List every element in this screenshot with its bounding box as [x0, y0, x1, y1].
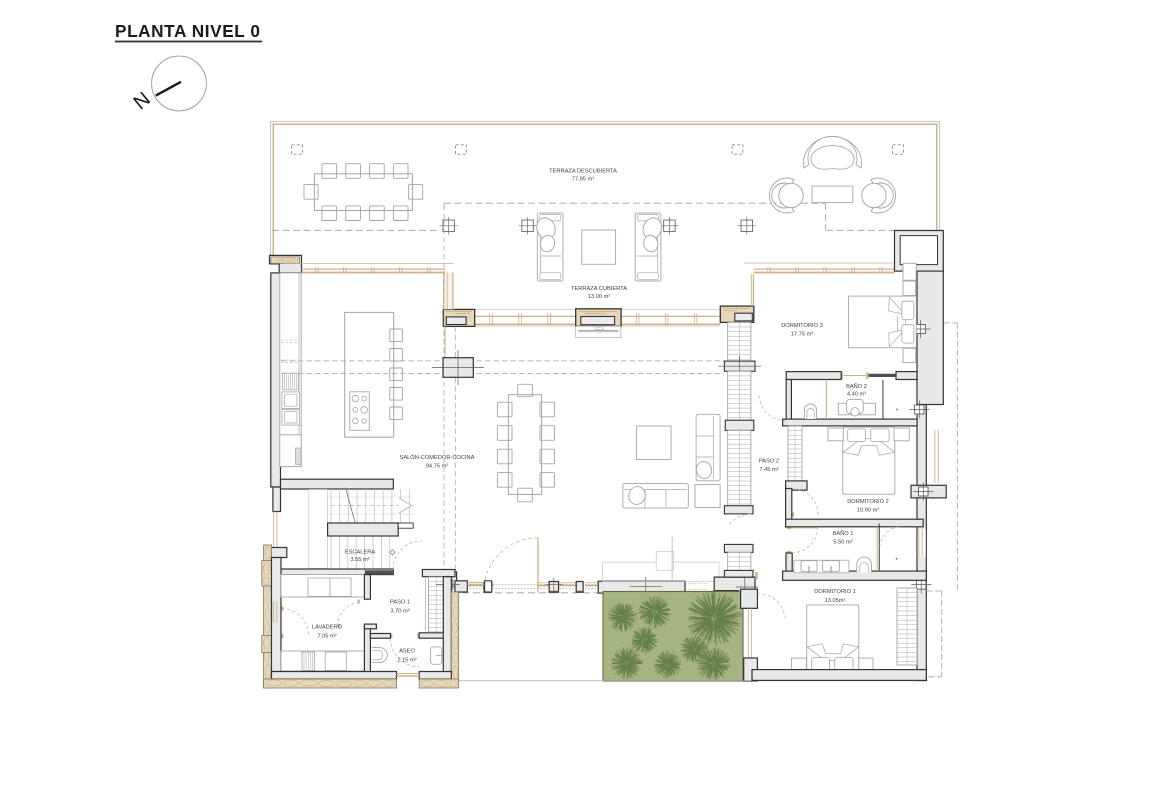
svg-text:PASO 1: PASO 1: [390, 600, 410, 606]
svg-text:7.45 m²: 7.45 m²: [759, 467, 778, 473]
svg-text:77.95 m²: 77.95 m²: [572, 177, 595, 183]
svg-text:ESCALERA: ESCALERA: [345, 550, 376, 556]
svg-text:7.05 m²: 7.05 m²: [317, 634, 336, 640]
svg-text:10.90 m²: 10.90 m²: [857, 508, 880, 514]
svg-text:3.70 m²: 3.70 m²: [390, 608, 409, 614]
svg-text:5.50 m²: 5.50 m²: [833, 540, 852, 546]
svg-text:ASEO: ASEO: [399, 649, 415, 655]
svg-text:DORMITORIO 1: DORMITORIO 1: [814, 589, 856, 595]
svg-text:SALÓN-COMEDOR-COCINA: SALÓN-COMEDOR-COCINA: [400, 454, 475, 461]
svg-text:3.55 m²: 3.55 m²: [350, 557, 369, 563]
svg-text:DORMITORIO 2: DORMITORIO 2: [847, 499, 889, 505]
svg-text:BAÑO 1: BAÑO 1: [833, 530, 854, 537]
svg-text:13.05m²: 13.05m²: [825, 598, 846, 604]
svg-text:94.75 m²: 94.75 m²: [426, 464, 449, 470]
svg-text:DORMITORIO 3: DORMITORIO 3: [781, 323, 823, 329]
svg-text:4.40 m²: 4.40 m²: [847, 392, 866, 398]
svg-text:13.00 m²: 13.00 m²: [588, 294, 611, 300]
svg-text:PASO 2: PASO 2: [759, 459, 779, 465]
svg-text:BAÑO 2: BAÑO 2: [846, 383, 867, 390]
svg-text:17.75 m²: 17.75 m²: [791, 332, 814, 338]
svg-text:PLANTA NIVEL 0: PLANTA NIVEL 0: [115, 21, 261, 41]
svg-text:TERRAZA CUBIERTA: TERRAZA CUBIERTA: [571, 286, 627, 292]
svg-text:2.15 m²: 2.15 m²: [397, 658, 416, 664]
svg-text:TERRAZA DESCUBIERTA: TERRAZA DESCUBIERTA: [549, 169, 617, 175]
